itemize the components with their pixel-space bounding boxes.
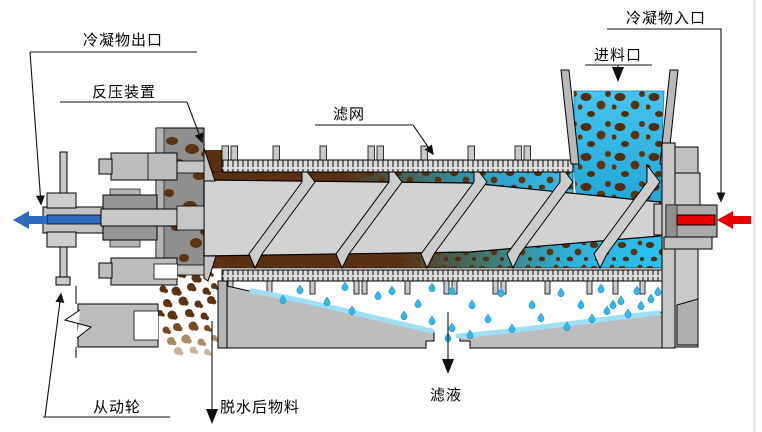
- label-filtrate: 滤液: [430, 387, 462, 404]
- water-drop-icon: [655, 287, 661, 296]
- water-drop-icon: [349, 306, 355, 315]
- water-drop-icon: [375, 291, 381, 300]
- water-drop-icon: [538, 313, 544, 322]
- solid-particle: [190, 313, 195, 318]
- water-drop-icon: [467, 330, 473, 339]
- solid-particle: [199, 304, 203, 308]
- condensate-outlet-pipe: [47, 215, 104, 224]
- solid-particle: [196, 277, 201, 282]
- solid-particle: [179, 351, 184, 356]
- screen-tab: [524, 146, 531, 160]
- water-drop-icon: [429, 283, 435, 292]
- water-drop-icon: [401, 311, 407, 320]
- solid-particle: [193, 325, 198, 330]
- water-drop-icon: [415, 299, 421, 308]
- screen-pin: [362, 281, 367, 294]
- label-filter-mesh: 滤网: [333, 106, 365, 123]
- water-drop-icon: [342, 282, 348, 291]
- label-condensate-outlet: 冷凝物出口: [83, 32, 163, 49]
- solid-particle: [161, 313, 165, 317]
- screen-pin: [587, 281, 592, 294]
- screen-tab: [515, 146, 522, 160]
- condensate-inlet-pipe: [677, 215, 715, 225]
- water-drop-icon: [449, 323, 455, 332]
- solid-particle: [179, 254, 189, 262]
- solid-particle: [178, 327, 183, 332]
- right-end-assembly: [662, 143, 751, 348]
- screen-tab: [421, 146, 428, 160]
- solid-particle: [176, 290, 181, 295]
- page-edge-line: [753, 0, 756, 432]
- water-drop-icon: [589, 314, 595, 323]
- solid-particle: [166, 137, 178, 145]
- water-drop-icon: [529, 300, 535, 309]
- screen-tab: [377, 146, 384, 160]
- condensate-outlet-arrow: [13, 211, 47, 229]
- discharge-housing: [156, 128, 209, 272]
- solid-particle: [212, 300, 217, 305]
- solid-particle: [164, 189, 174, 197]
- solid-particle: [186, 338, 191, 343]
- water-drop-icon: [618, 296, 624, 305]
- solid-particle: [194, 350, 198, 354]
- solid-particle: [208, 328, 212, 332]
- dewatering-machine-diagram: 冷凝物出口 反压装置 滤网 进料口 冷凝物入口 从动轮 脱水后物料 滤液: [0, 0, 762, 432]
- diagram-canvas: 冷凝物出口 反压装置 滤网 进料口 冷凝物入口 从动轮 脱水后物料 滤液: [0, 0, 762, 432]
- filter-screen-top: [222, 146, 573, 172]
- screen-pin: [493, 281, 498, 294]
- water-drop-icon: [509, 324, 515, 333]
- condensate-inlet-arrow: [717, 211, 751, 229]
- water-drop-icon: [638, 301, 644, 310]
- water-drop-icon: [610, 300, 616, 309]
- filter-screen-bottom: [222, 270, 662, 294]
- water-drop-icon: [625, 309, 631, 318]
- solid-particle: [192, 287, 197, 292]
- screen-tab: [468, 146, 475, 160]
- water-drop-icon: [604, 306, 610, 315]
- water-drop-icon: [469, 300, 475, 309]
- solid-particle: [164, 289, 168, 293]
- solid-particle: [167, 330, 171, 334]
- screen-pin: [405, 281, 410, 294]
- solid-particle: [190, 238, 202, 248]
- screen-pin: [613, 281, 618, 294]
- solid-particle: [202, 342, 206, 346]
- screen-pin: [444, 281, 449, 294]
- screen-pin: [310, 281, 315, 294]
- solid-particle: [208, 352, 212, 356]
- drain-pans: [218, 281, 662, 348]
- water-drop-icon: [389, 286, 395, 295]
- water-drop-icon: [648, 294, 654, 303]
- water-drop-icon: [429, 316, 435, 325]
- label-condensate-inlet: 冷凝物入口: [626, 10, 706, 27]
- label-back-pressure-device: 反压装置: [92, 84, 156, 101]
- screen-tab: [368, 146, 375, 160]
- screen-pin: [640, 281, 645, 294]
- solid-particle: [183, 300, 188, 305]
- water-drop-icon: [578, 300, 584, 309]
- screen-tab: [273, 146, 280, 160]
- water-drop-icon: [558, 288, 564, 297]
- label-driven-wheel: 从动轮: [93, 399, 141, 416]
- water-drop-icon: [598, 284, 604, 293]
- label-dewatered-material: 脱水后物料: [220, 399, 300, 416]
- back-pressure-cylinder-top: [111, 153, 177, 180]
- screen-tab: [320, 146, 327, 160]
- solid-particle: [172, 341, 177, 346]
- water-drop-icon: [297, 285, 303, 294]
- water-drop-icon: [634, 286, 640, 295]
- water-drop-icon: [324, 297, 330, 306]
- screen-pin: [545, 281, 550, 294]
- solid-particle: [205, 316, 209, 320]
- solid-particle: [172, 314, 177, 319]
- label-feed-inlet: 进料口: [594, 47, 642, 64]
- solid-particle: [185, 144, 199, 154]
- solid-particle: [168, 303, 173, 308]
- solid-particle: [207, 291, 211, 295]
- screen-pin: [354, 281, 359, 294]
- water-drop-icon: [485, 314, 491, 323]
- screen-tab: [231, 146, 238, 160]
- screen-tab: [222, 146, 229, 160]
